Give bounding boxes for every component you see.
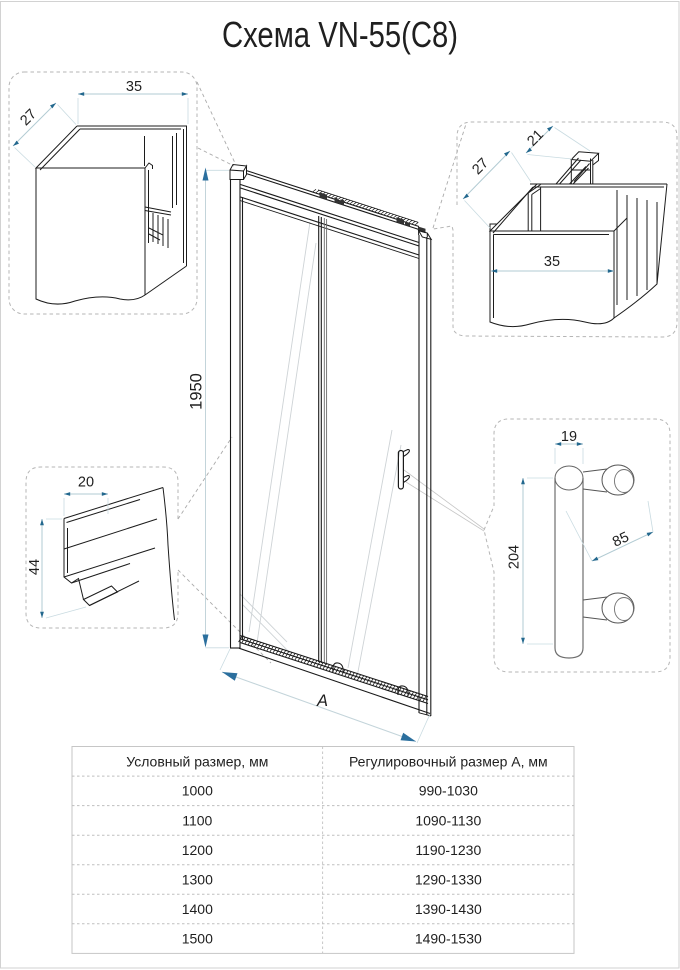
svg-text:27: 27: [469, 155, 492, 178]
svg-text:1400: 1400: [182, 901, 213, 917]
svg-text:44: 44: [27, 559, 43, 575]
svg-text:85: 85: [610, 529, 631, 550]
svg-text:A: A: [316, 692, 328, 710]
svg-text:Схема VN-55(C8): Схема VN-55(C8): [222, 14, 458, 55]
svg-text:1290-1330: 1290-1330: [415, 871, 482, 887]
svg-text:1190-1230: 1190-1230: [415, 842, 481, 858]
svg-text:1090-1130: 1090-1130: [415, 812, 481, 828]
svg-text:1500: 1500: [182, 931, 213, 947]
svg-text:1300: 1300: [182, 871, 213, 887]
svg-text:35: 35: [544, 254, 560, 270]
svg-text:35: 35: [126, 79, 142, 95]
svg-text:Условный размер, мм: Условный размер, мм: [126, 753, 268, 769]
svg-text:1200: 1200: [182, 842, 213, 858]
svg-text:1000: 1000: [182, 783, 213, 799]
svg-text:1390-1430: 1390-1430: [415, 901, 482, 917]
svg-text:1950: 1950: [188, 373, 206, 410]
svg-text:Регулировочный размер А, мм: Регулировочный размер А, мм: [349, 753, 548, 769]
svg-text:1100: 1100: [182, 812, 212, 828]
svg-text:204: 204: [507, 545, 523, 569]
svg-text:1490-1530: 1490-1530: [415, 931, 482, 947]
svg-text:19: 19: [561, 429, 577, 445]
svg-text:20: 20: [78, 475, 94, 491]
svg-text:21: 21: [524, 127, 547, 150]
svg-text:990-1030: 990-1030: [419, 783, 478, 799]
svg-text:27: 27: [17, 106, 40, 129]
